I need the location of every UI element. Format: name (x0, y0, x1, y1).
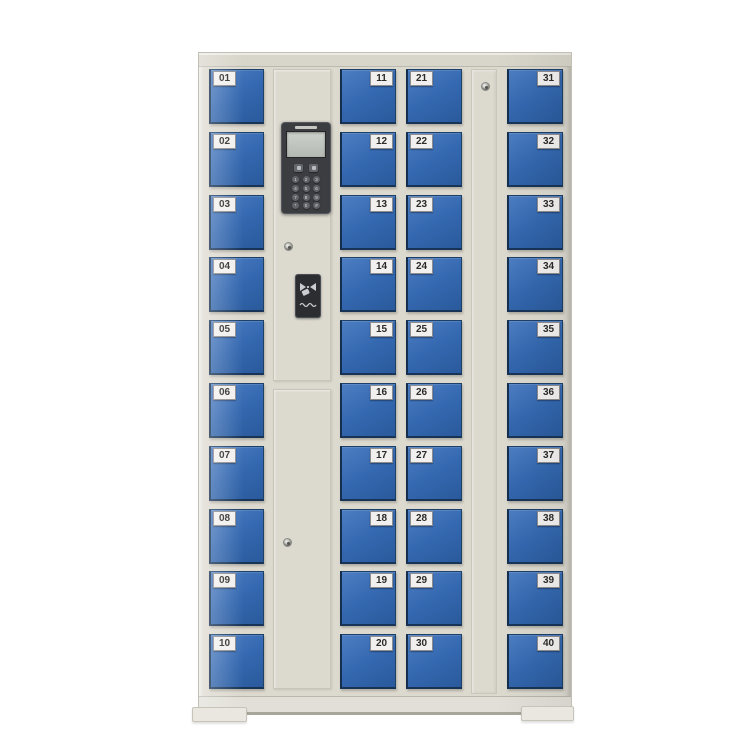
service-door[interactable] (273, 389, 331, 689)
door-number-label: 36 (537, 385, 560, 400)
locker-door-40[interactable]: 40 (507, 634, 563, 689)
panel-keyhole-icon[interactable] (284, 242, 293, 251)
keypad-key-6[interactable]: 6 (313, 185, 320, 192)
locker-door-23[interactable]: 23 (406, 195, 462, 250)
locker-door-08[interactable]: 08 (209, 509, 264, 564)
door-number-label: 32 (537, 134, 560, 149)
keypad-key-*[interactable]: * (292, 202, 299, 209)
locker-door-21[interactable]: 21 (406, 69, 462, 124)
locker-door-05[interactable]: 05 (209, 320, 264, 375)
door-number-label: 03 (213, 197, 236, 212)
door-number-label: 37 (537, 448, 560, 463)
function-key-2[interactable] (309, 164, 318, 172)
door-column-2: 11121314151617181920 (338, 67, 398, 696)
door-number-label: 26 (410, 385, 433, 400)
door-column-1: 01020304050607080910 (207, 67, 266, 696)
door-number-label: 06 (213, 385, 236, 400)
locker-door-34[interactable]: 34 (507, 257, 563, 312)
door-number-label: 22 (410, 134, 433, 149)
function-key-1[interactable] (294, 164, 303, 172)
locker-door-14[interactable]: 14 (340, 257, 396, 312)
door-number-label: 12 (370, 134, 393, 149)
door-number-label: 31 (537, 71, 560, 86)
locker-door-06[interactable]: 06 (209, 383, 264, 438)
door-number-label: 17 (370, 448, 393, 463)
locker-door-38[interactable]: 38 (507, 509, 563, 564)
door-number-label: 38 (537, 511, 560, 526)
locker-door-17[interactable]: 17 (340, 446, 396, 501)
door-number-label: 23 (410, 197, 433, 212)
lock-column-door[interactable] (471, 69, 497, 694)
function-key-row (282, 164, 330, 172)
control-panel: 123456789*0# (281, 122, 331, 214)
door-number-label: 30 (410, 636, 433, 651)
door-number-label: 20 (370, 636, 393, 651)
door-number-label: 34 (537, 259, 560, 274)
door-column-3: 21222324252627282930 (404, 67, 464, 696)
locker-door-18[interactable]: 18 (340, 509, 396, 564)
locker-door-10[interactable]: 10 (209, 634, 264, 689)
door-number-label: 10 (213, 636, 236, 651)
door-number-label: 19 (370, 573, 393, 588)
locker-door-27[interactable]: 27 (406, 446, 462, 501)
door-number-label: 08 (213, 511, 236, 526)
cabinet-foot-right (521, 706, 574, 721)
keypad-key-3[interactable]: 3 (313, 176, 320, 183)
locker-door-04[interactable]: 04 (209, 257, 264, 312)
locker-door-19[interactable]: 19 (340, 571, 396, 626)
locker-door-32[interactable]: 32 (507, 132, 563, 187)
door-number-label: 14 (370, 259, 393, 274)
door-number-label: 25 (410, 322, 433, 337)
door-number-label: 29 (410, 573, 433, 588)
door-number-label: 09 (213, 573, 236, 588)
service-door-keyhole-icon[interactable] (283, 538, 292, 547)
door-number-label: 18 (370, 511, 393, 526)
locker-door-22[interactable]: 22 (406, 132, 462, 187)
locker-door-37[interactable]: 37 (507, 446, 563, 501)
keypad-key-0[interactable]: 0 (303, 202, 310, 209)
cabinet-top-frame (199, 53, 571, 67)
cabinet-base (199, 696, 571, 715)
locker-door-02[interactable]: 02 (209, 132, 264, 187)
card-reader[interactable] (295, 274, 321, 318)
locker-door-36[interactable]: 36 (507, 383, 563, 438)
keypad-key-7[interactable]: 7 (292, 194, 299, 201)
locker-door-12[interactable]: 12 (340, 132, 396, 187)
locker-door-28[interactable]: 28 (406, 509, 462, 564)
door-number-label: 40 (537, 636, 560, 651)
product-photo: 01020304050607080910 123456789*0# (0, 0, 750, 750)
locker-door-03[interactable]: 03 (209, 195, 264, 250)
locker-cabinet: 01020304050607080910 123456789*0# (198, 52, 572, 714)
locker-door-39[interactable]: 39 (507, 571, 563, 626)
cabinet-foot-left (192, 707, 247, 722)
locker-door-29[interactable]: 29 (406, 571, 462, 626)
locker-door-35[interactable]: 35 (507, 320, 563, 375)
door-number-label: 02 (213, 134, 236, 149)
keypad-key-5[interactable]: 5 (303, 185, 310, 192)
door-number-label: 01 (213, 71, 236, 86)
keypad-key-1[interactable]: 1 (292, 176, 299, 183)
lcd-screen (286, 131, 326, 158)
door-number-label: 24 (410, 259, 433, 274)
locker-door-31[interactable]: 31 (507, 69, 563, 124)
function-key-1-icon (297, 166, 301, 170)
locker-door-01[interactable]: 01 (209, 69, 264, 124)
door-number-label: 33 (537, 197, 560, 212)
door-number-label: 15 (370, 322, 393, 337)
brand-label-strip (295, 126, 317, 129)
locker-door-16[interactable]: 16 (340, 383, 396, 438)
door-number-label: 05 (213, 322, 236, 337)
locker-door-24[interactable]: 24 (406, 257, 462, 312)
door-number-label: 07 (213, 448, 236, 463)
locker-door-11[interactable]: 11 (340, 69, 396, 124)
keypad-key-#[interactable]: # (313, 202, 320, 209)
door-number-label: 11 (370, 71, 393, 86)
locker-door-13[interactable]: 13 (340, 195, 396, 250)
door-number-label: 21 (410, 71, 433, 86)
keypad-key-4[interactable]: 4 (292, 185, 299, 192)
door-number-label: 28 (410, 511, 433, 526)
locker-door-33[interactable]: 33 (507, 195, 563, 250)
numeric-keypad: 123456789*0# (282, 176, 330, 209)
door-number-label: 04 (213, 259, 236, 274)
locker-door-09[interactable]: 09 (209, 571, 264, 626)
function-key-2-icon (312, 166, 316, 170)
door-number-label: 35 (537, 322, 560, 337)
locker-door-07[interactable]: 07 (209, 446, 264, 501)
locker-door-30[interactable]: 30 (406, 634, 462, 689)
control-panel-door[interactable]: 123456789*0# (273, 69, 331, 381)
lock-column (469, 67, 499, 696)
door-number-label: 13 (370, 197, 393, 212)
card-reader-icon (298, 279, 318, 313)
door-number-label: 16 (370, 385, 393, 400)
control-column: 123456789*0# (270, 67, 334, 696)
locker-door-20[interactable]: 20 (340, 634, 396, 689)
locker-door-26[interactable]: 26 (406, 383, 462, 438)
door-column-4: 31323334353637383940 (505, 67, 565, 696)
locker-door-25[interactable]: 25 (406, 320, 462, 375)
keypad-key-9[interactable]: 9 (313, 194, 320, 201)
lock-column-keyhole-icon[interactable] (481, 82, 490, 91)
keypad-key-8[interactable]: 8 (303, 194, 310, 201)
locker-door-15[interactable]: 15 (340, 320, 396, 375)
keypad-key-2[interactable]: 2 (303, 176, 310, 183)
door-number-label: 39 (537, 573, 560, 588)
door-number-label: 27 (410, 448, 433, 463)
